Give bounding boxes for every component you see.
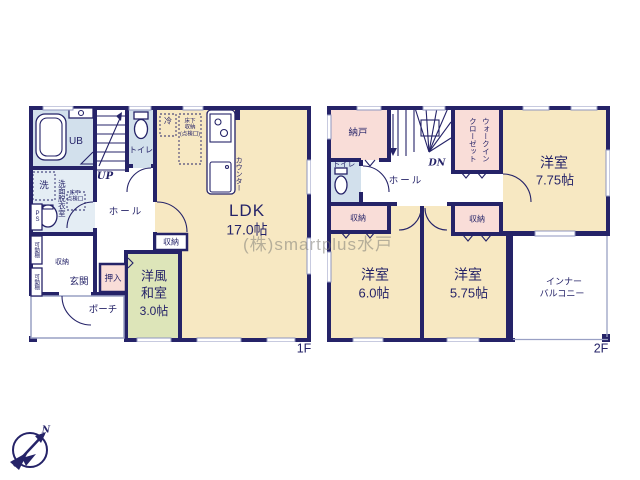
label-washroom: 洗面脱衣室 [57,179,66,217]
label-storage-mid-1f: 収納 [163,237,179,246]
label-storage-mid-2f: 収納 [469,214,485,223]
label-counter: カウンター [234,157,242,192]
kitchen-counter-icon [207,110,235,194]
label-floor2: 2F [594,342,609,357]
label-room2: 洋室 [361,267,389,284]
label-entrance: 玄関 [69,276,88,287]
label-nando: 納戸 [348,127,367,138]
label-balcony-1: インナー [546,277,582,288]
label-floor1: 1F [297,342,312,357]
label-wic-col2: クローゼット [468,118,477,163]
label-toilet-2f: トイレ [333,161,356,170]
label-washitsu-1: 洋風 [141,268,167,283]
label-ub: UB [69,136,83,148]
compass-icon [6,424,58,476]
label-ps: PS [33,211,40,223]
label-movable-upper: 可動棚 [33,242,39,259]
label-movable-lower: 可動棚 [33,274,39,291]
label-room1: 洋室 [540,155,568,172]
toilet-2f-icon [335,168,347,194]
bathtub-icon [36,114,66,160]
label-room3-size: 5.75帖 [450,285,488,300]
floor1-porch-outline [31,296,124,338]
label-compass-north: N [42,426,50,437]
toilet-1f-icon [134,112,148,139]
label-toilet-1f: トイレ [129,145,153,154]
label-room1-size: 7.75帖 [536,172,574,187]
label-underfloor-storage: 床下収納(点検口) [180,118,200,137]
label-balcony-2: バルコニー [540,289,585,300]
label-oshiire: 押入 [104,273,121,283]
label-wic-col1: ウォークイン [481,118,490,163]
label-hall-1f: ホール [109,206,144,217]
label-dn: DN [429,157,446,168]
watermark: (株)smartplus水戸 [243,230,393,255]
label-washitsu-2: 和室 [141,285,167,300]
label-ldk: LDK [229,201,265,221]
label-room2-size: 6.0帖 [358,285,389,300]
label-hall-2f: ホール [389,175,424,186]
floorplan-canvas: UB トイレ UP 洗 洗面脱衣室 床下点検口 PS ホール 冷 床下収納(点検… [0,0,640,480]
label-room3: 洋室 [454,267,482,284]
label-fridge: 冷 [164,116,172,125]
label-washer: 洗 [39,180,49,191]
label-storage-left-2f: 収納 [350,213,366,222]
label-storage-left-1f: 収納 [55,259,69,267]
label-porch: ポーチ [89,304,118,315]
label-washitsu-size: 3.0帖 [140,304,169,318]
label-underfloor-hatch: 床下点検口 [67,191,84,204]
label-up: UP [97,171,113,183]
